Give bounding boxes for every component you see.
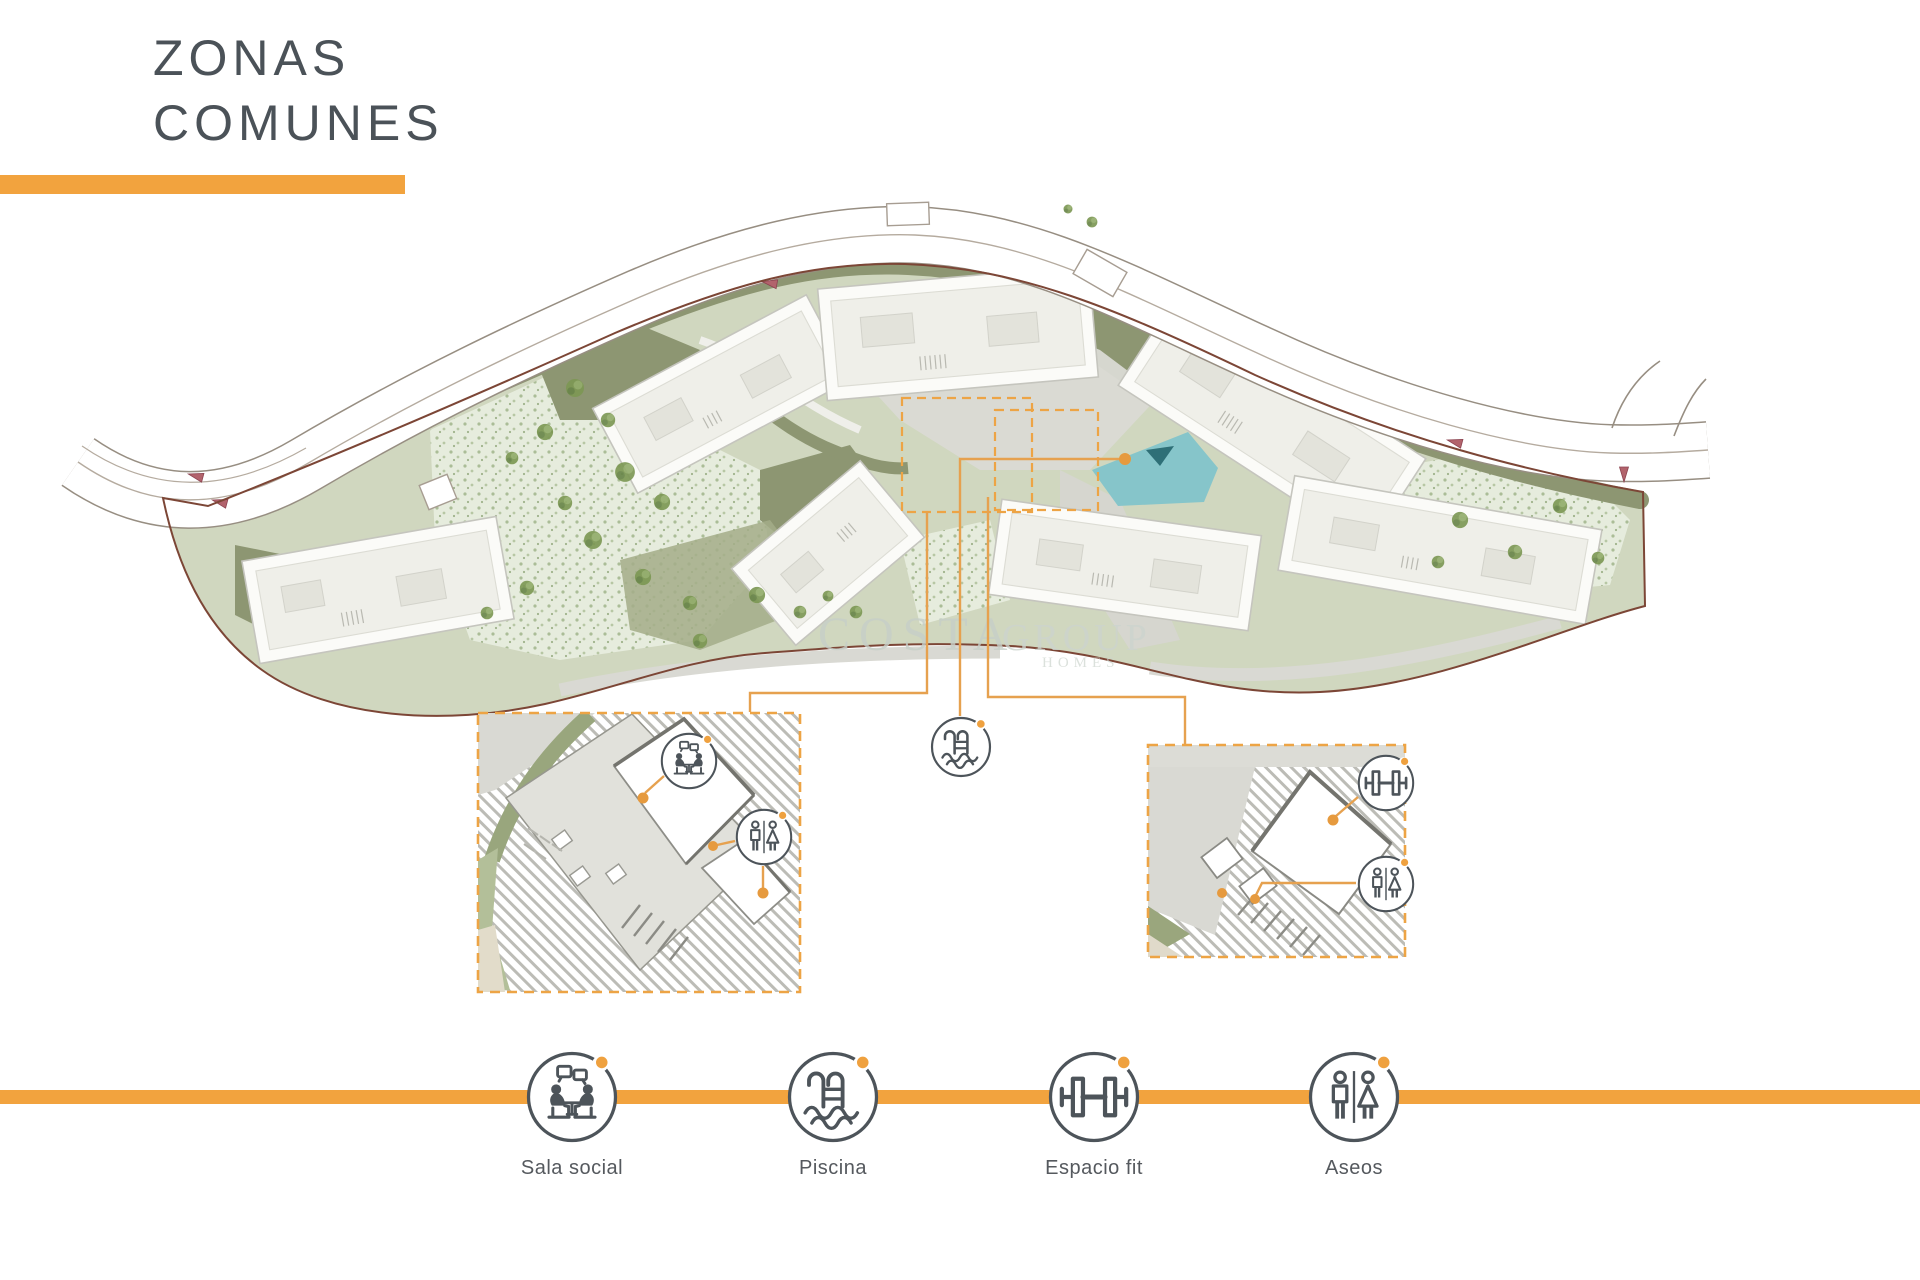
badge-espacio-fit (1359, 756, 1413, 810)
svg-text:GROUP: GROUP (1002, 617, 1151, 659)
page-title: ZONAS COMUNES (153, 26, 444, 156)
title-accent-bar (0, 175, 405, 194)
svg-text:HOMES: HOMES (1042, 655, 1120, 671)
watermark: COSTA GROUP HOMES (818, 608, 1151, 671)
badge-piscina (932, 718, 990, 776)
badge-sala-social (662, 734, 716, 788)
pool-leader-dot (1119, 453, 1131, 465)
inset-gimnasio (1148, 745, 1413, 958)
page-title-line2: COMUNES (153, 91, 444, 156)
svg-text:COSTA: COSTA (818, 608, 1017, 661)
page-header: ZONAS COMUNES (153, 26, 444, 156)
page-title-line1: ZONAS (153, 26, 444, 91)
badge-aseos-right (1359, 857, 1413, 911)
brochure-page: ZONAS COMUNES (0, 0, 1920, 1280)
badge-aseos-left (737, 810, 791, 864)
inset-sala-social (478, 713, 800, 992)
